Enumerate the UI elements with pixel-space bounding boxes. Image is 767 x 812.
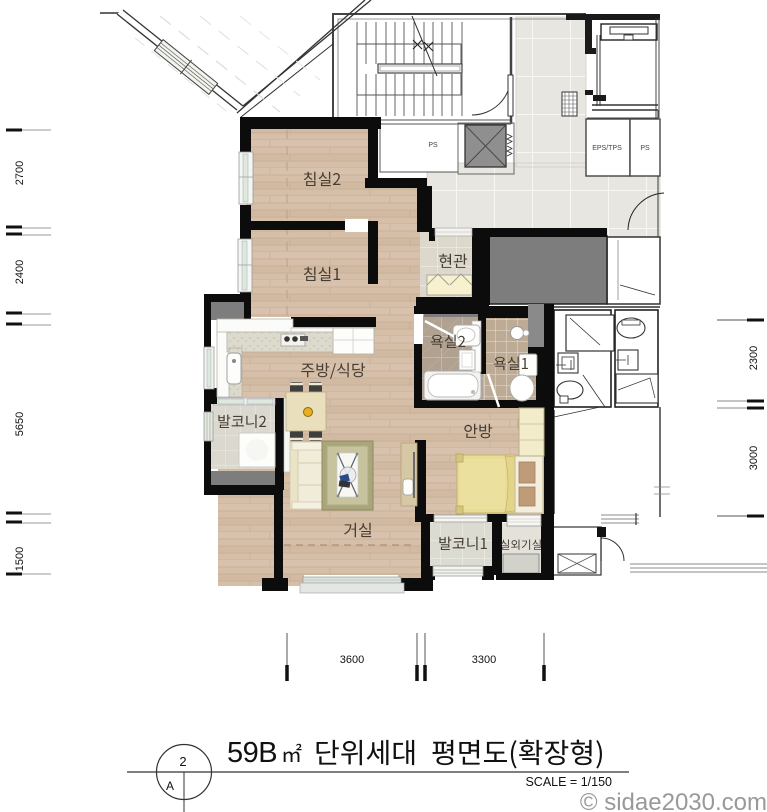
svg-text:59B: 59B (227, 737, 277, 769)
svg-text:3000: 3000 (748, 446, 760, 470)
svg-text:© sidae2030.com: © sidae2030.com (580, 789, 767, 812)
svg-text:PS: PS (428, 142, 438, 149)
svg-text:PS: PS (640, 145, 650, 152)
svg-text:2: 2 (179, 754, 186, 769)
svg-text:A: A (166, 779, 174, 793)
svg-text:EPS/TPS: EPS/TPS (592, 145, 622, 152)
svg-text:2700: 2700 (14, 161, 26, 185)
svg-text:2400: 2400 (14, 260, 26, 284)
svg-text:2300: 2300 (748, 346, 760, 370)
svg-text:SCALE = 1/150: SCALE = 1/150 (525, 775, 612, 789)
svg-text:5650: 5650 (14, 412, 26, 436)
svg-text:3600: 3600 (340, 654, 364, 666)
svg-text:3300: 3300 (472, 654, 496, 666)
svg-text:1500: 1500 (14, 547, 26, 571)
